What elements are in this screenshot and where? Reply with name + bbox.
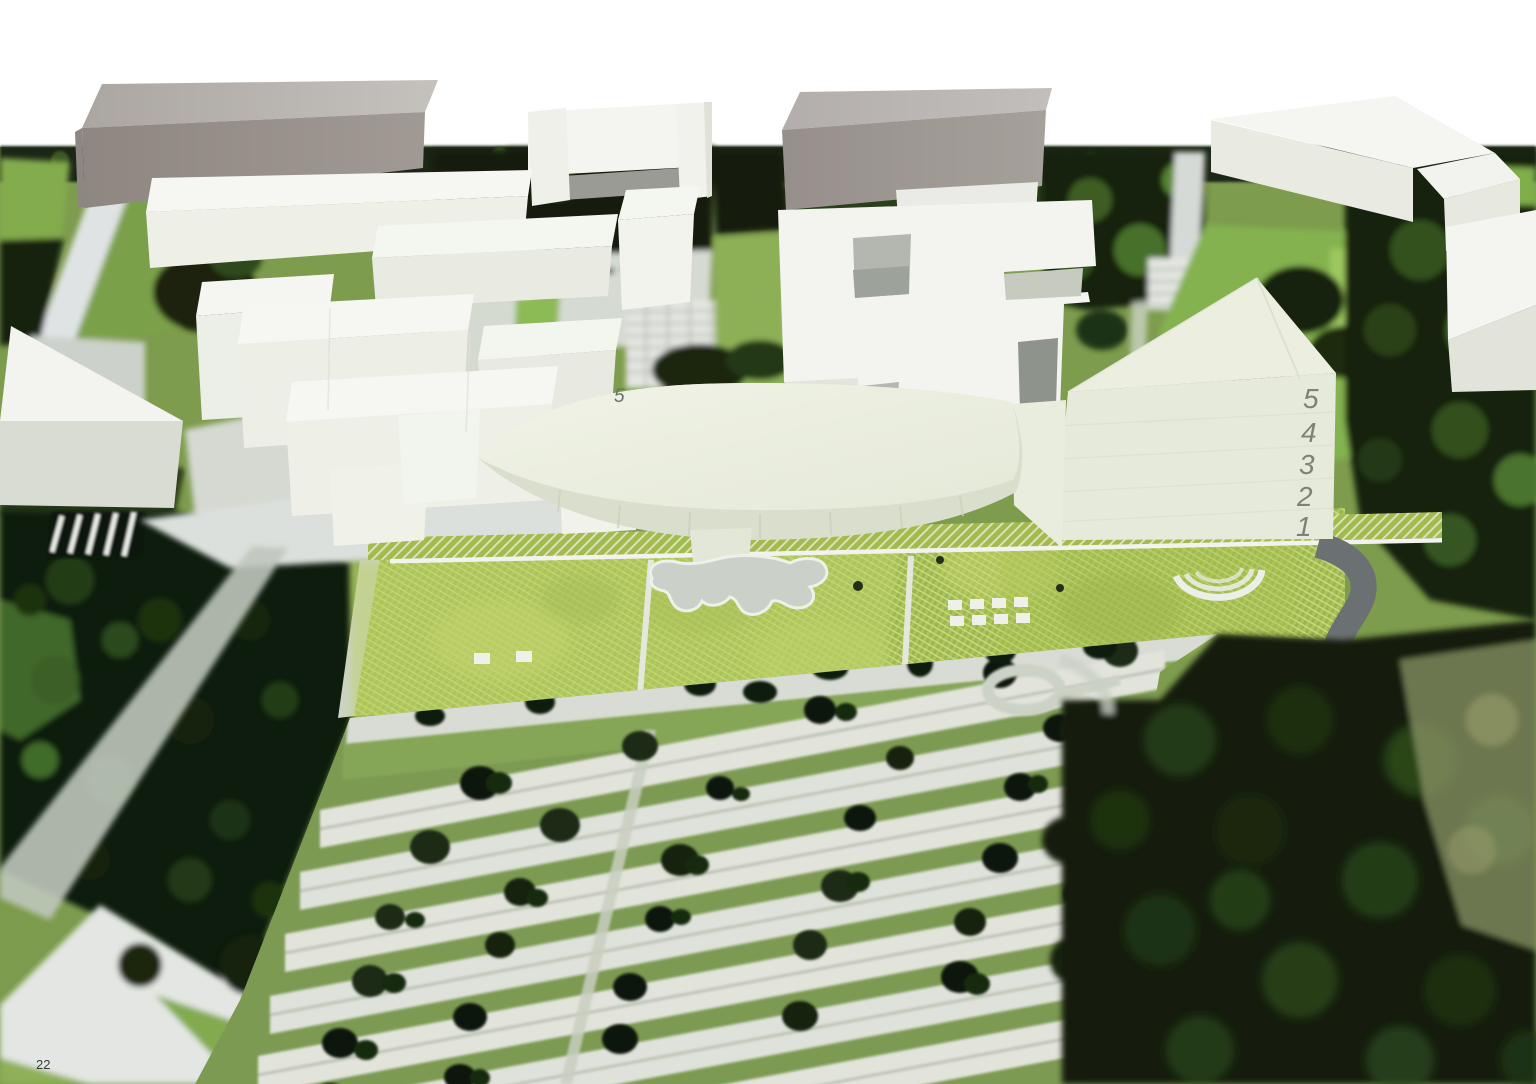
svg-text:22: 22 <box>36 1057 50 1072</box>
svg-text:4: 4 <box>1301 417 1317 448</box>
svg-text:2: 2 <box>1296 481 1313 512</box>
svg-text:1: 1 <box>1296 511 1312 542</box>
svg-text:3: 3 <box>1299 449 1315 480</box>
svg-text:5: 5 <box>1303 383 1319 414</box>
svg-text:5: 5 <box>614 386 625 407</box>
